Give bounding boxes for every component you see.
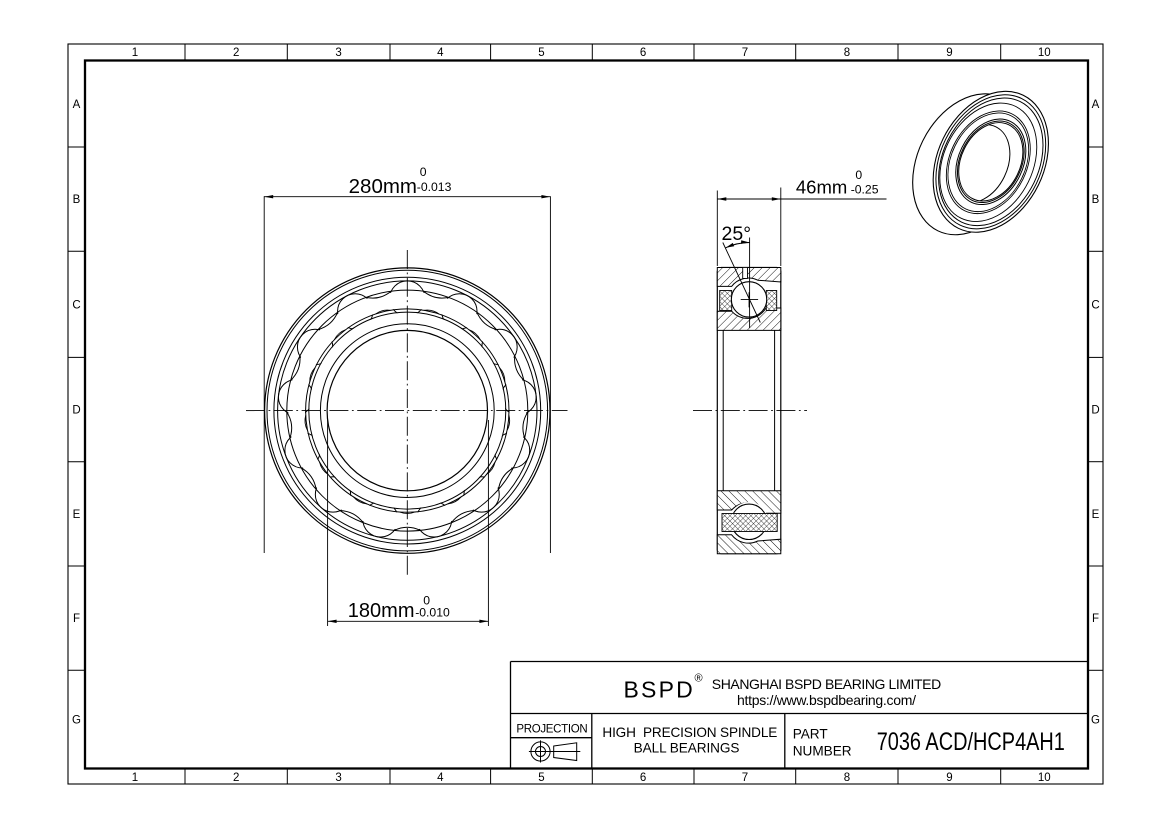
svg-text:1: 1 (132, 772, 138, 784)
svg-text:-0.013: -0.013 (417, 180, 452, 194)
svg-text:9: 9 (946, 47, 952, 59)
svg-text:A: A (1092, 99, 1100, 111)
svg-text:C: C (72, 299, 80, 311)
svg-text:6: 6 (640, 47, 646, 59)
svg-text:6: 6 (640, 772, 646, 784)
svg-text:5: 5 (538, 47, 544, 59)
svg-text:PART: PART (793, 727, 828, 742)
svg-text:NUMBER: NUMBER (793, 743, 852, 758)
svg-text:D: D (1091, 405, 1099, 417)
svg-text:4: 4 (437, 772, 444, 784)
svg-text:8: 8 (844, 47, 850, 59)
svg-text:5: 5 (538, 772, 544, 784)
svg-text:0: 0 (420, 165, 427, 179)
svg-text:2: 2 (233, 47, 239, 59)
svg-text:25°: 25° (722, 223, 752, 245)
svg-text:G: G (1091, 714, 1100, 726)
svg-text:8: 8 (844, 772, 850, 784)
svg-text:A: A (73, 99, 81, 111)
svg-text:B: B (1092, 194, 1100, 206)
svg-text:280mm: 280mm (349, 175, 417, 198)
svg-text:7036 ACD/HCP4AH1: 7036 ACD/HCP4AH1 (877, 728, 1065, 756)
svg-text:1: 1 (132, 47, 138, 59)
svg-text:BALL BEARINGS: BALL BEARINGS (634, 741, 740, 756)
svg-text:2: 2 (233, 772, 239, 784)
svg-text:E: E (1092, 509, 1100, 521)
svg-text:0: 0 (855, 168, 862, 182)
svg-text:HIGH PRECISION SPINDLE: HIGH PRECISION SPINDLE (602, 725, 777, 740)
svg-text:3: 3 (335, 47, 341, 59)
svg-text:BSPD: BSPD (624, 676, 695, 702)
svg-text:E: E (73, 509, 81, 521)
svg-text:https://www.bspdbearing.com/: https://www.bspdbearing.com/ (737, 692, 916, 708)
svg-text:SHANGHAI BSPD BEARING LIMITED: SHANGHAI BSPD BEARING LIMITED (712, 676, 941, 692)
svg-text:D: D (72, 405, 80, 417)
svg-text:180mm: 180mm (348, 600, 415, 622)
svg-text:46mm: 46mm (796, 177, 847, 198)
svg-text:F: F (73, 613, 80, 625)
svg-text:7: 7 (742, 47, 748, 59)
svg-text:C: C (1091, 299, 1099, 311)
svg-text:-0.25: -0.25 (851, 182, 879, 196)
svg-text:B: B (73, 194, 81, 206)
svg-text:3: 3 (335, 772, 341, 784)
svg-text:10: 10 (1038, 47, 1051, 59)
svg-text:G: G (72, 714, 81, 726)
svg-text:-0.010: -0.010 (415, 606, 450, 620)
svg-text:®: ® (695, 673, 703, 685)
svg-text:F: F (1092, 613, 1099, 625)
svg-text:7: 7 (742, 772, 748, 784)
svg-text:9: 9 (946, 772, 952, 784)
svg-text:PROJECTION: PROJECTION (516, 723, 587, 735)
svg-text:4: 4 (437, 47, 444, 59)
svg-text:10: 10 (1038, 772, 1051, 784)
